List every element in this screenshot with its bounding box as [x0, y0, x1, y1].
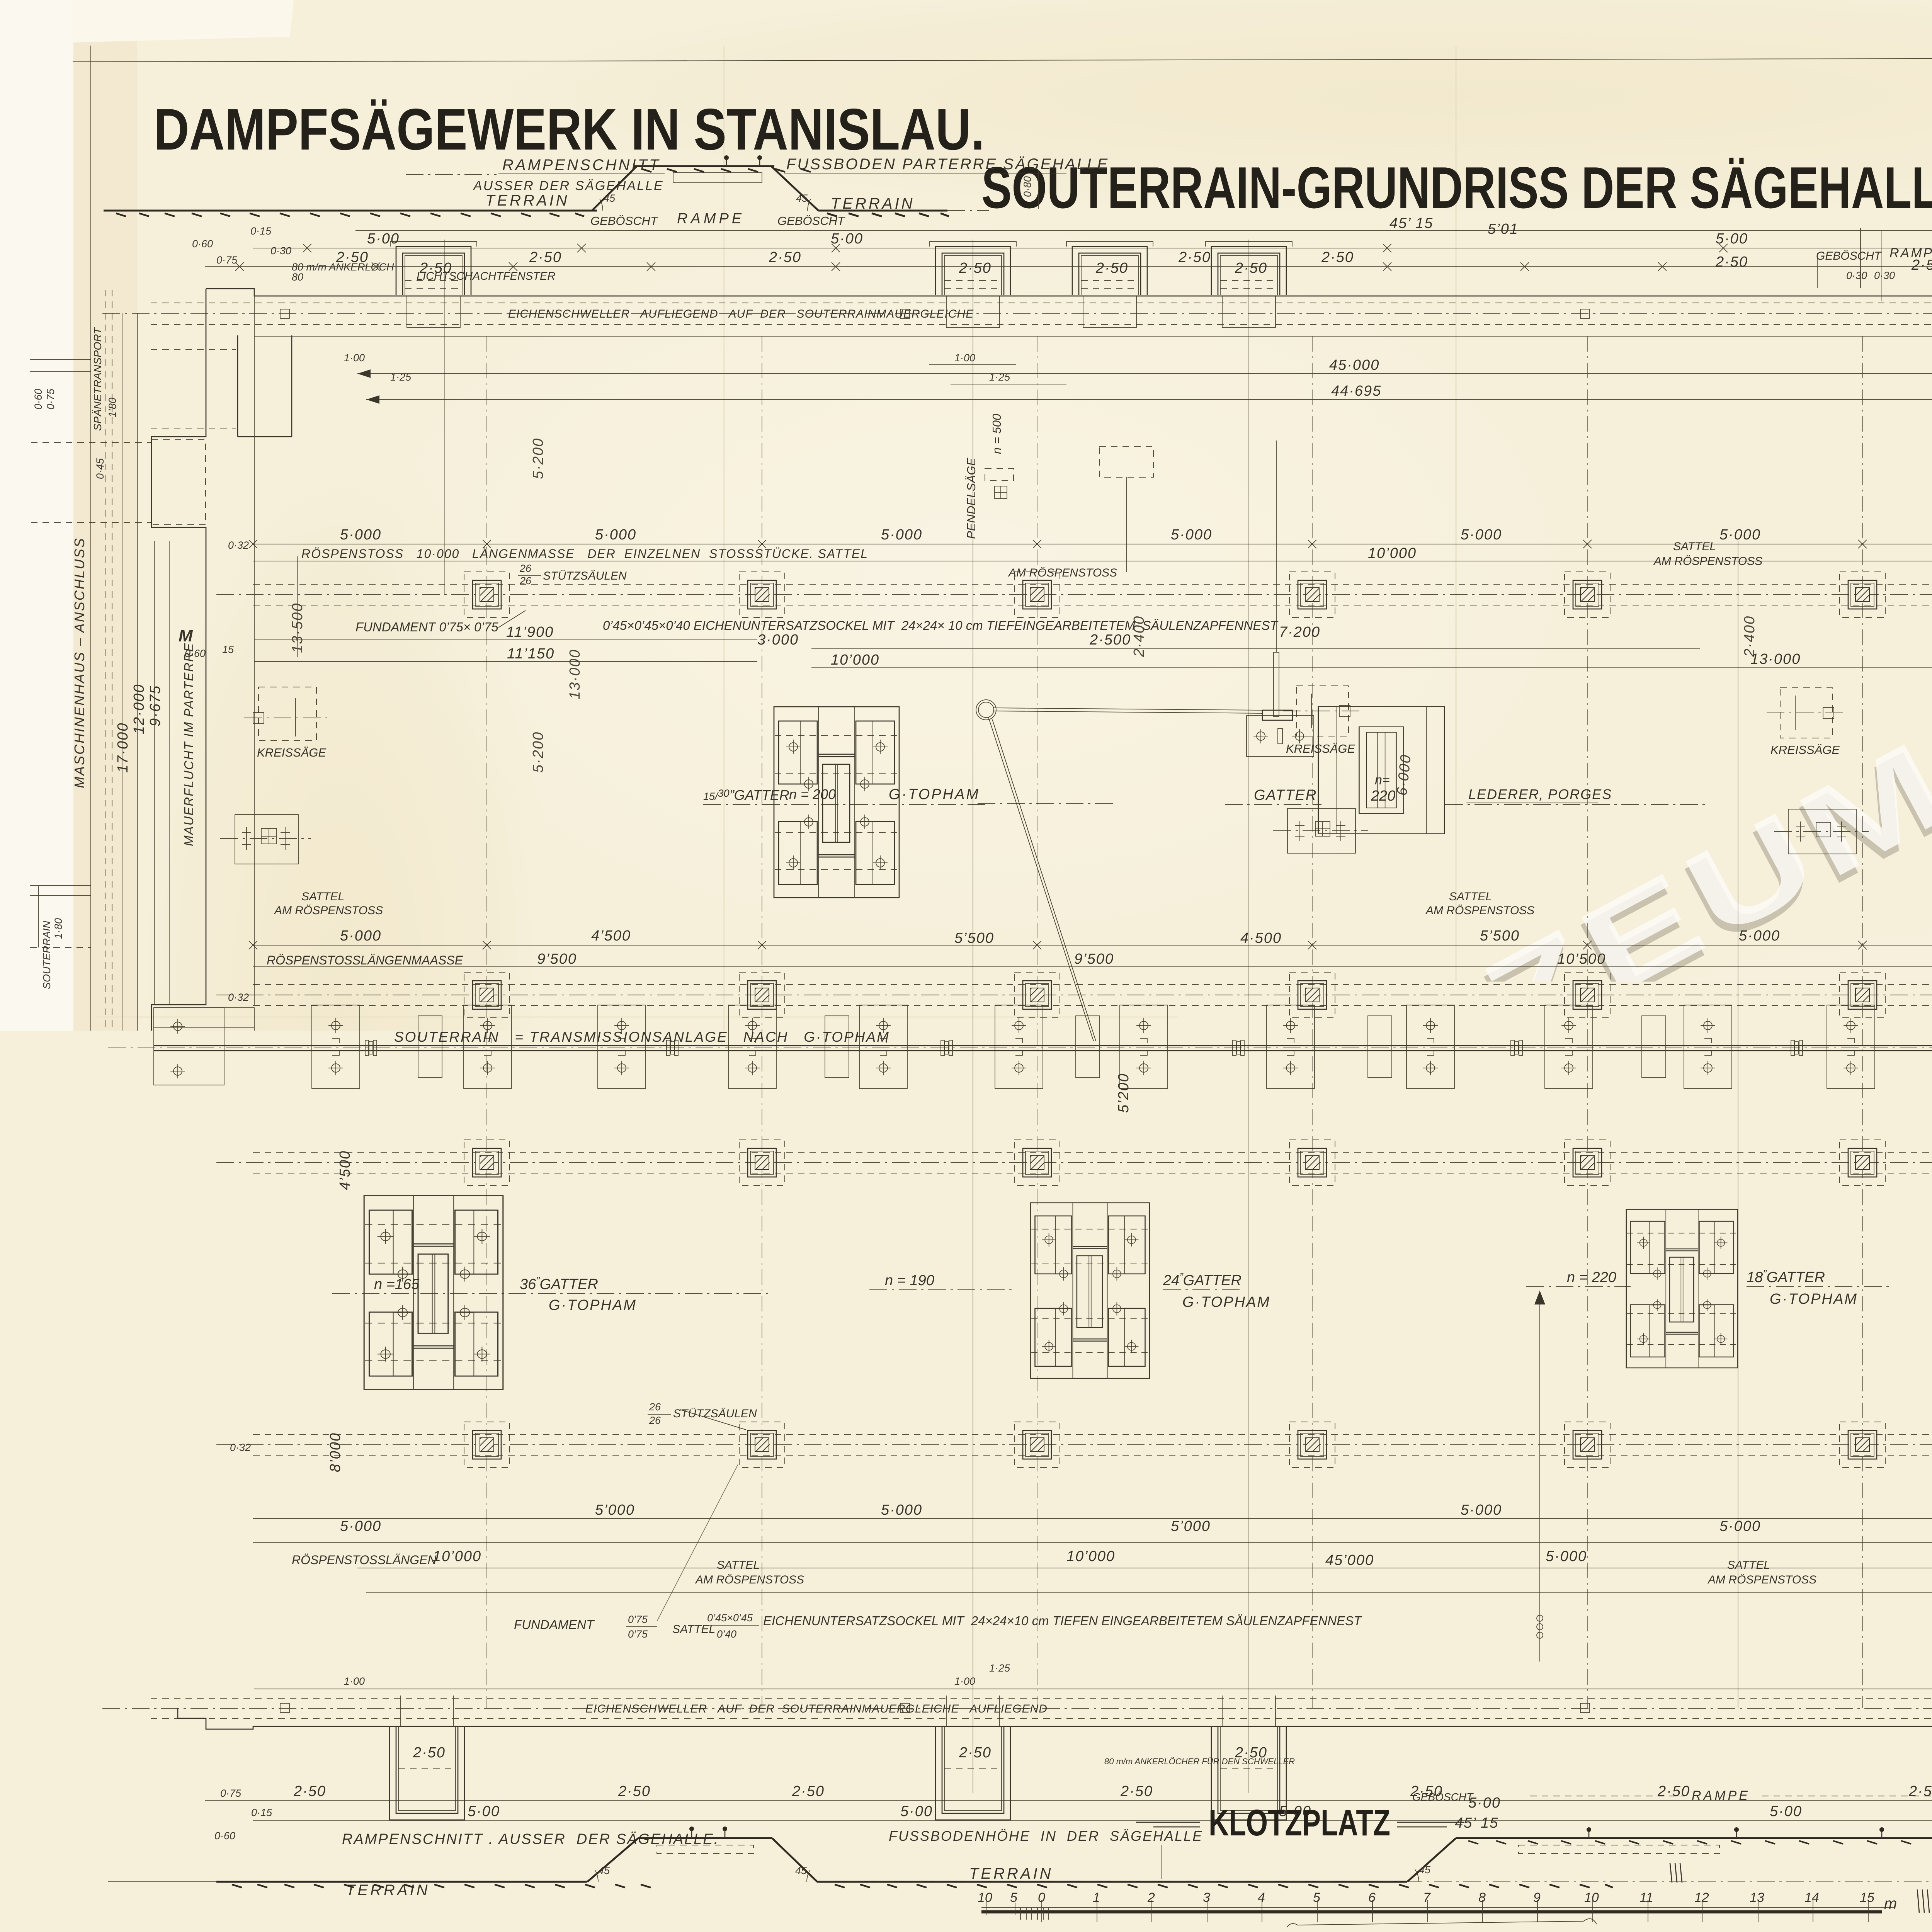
- svg-text:KREISSÄGE: KREISSÄGE: [257, 746, 326, 759]
- svg-text:GEBÖSCHT: GEBÖSCHT: [1816, 250, 1882, 262]
- svg-text:80: 80: [292, 271, 303, 283]
- svg-text:G·TOPHAM: G·TOPHAM: [1770, 1291, 1858, 1307]
- svg-text:13: 13: [1750, 1890, 1764, 1905]
- svg-text:4·550: 4·550: [127, 1141, 143, 1182]
- svg-text:13’000: 13’000: [582, 1315, 599, 1364]
- svg-text:MASCHINENHAUS – ANSCHLUSS: MASCHINENHAUS – ANSCHLUSS: [71, 537, 87, 788]
- svg-text:1: 1: [1093, 1890, 1100, 1905]
- svg-text:45’000: 45’000: [1325, 1552, 1374, 1568]
- svg-text:0’75: 0’75: [628, 1614, 648, 1625]
- svg-text:11’900: 11’900: [506, 624, 554, 640]
- svg-text:0’45×0’45×0’40 EICHENUNTERSATZ: 0’45×0’45×0’40 EICHENUNTERSATZSOCKEL MIT…: [603, 618, 1279, 633]
- svg-text:5·00: 5·00: [1468, 1795, 1501, 1811]
- svg-text:2’900: 2’900: [1595, 1648, 1636, 1664]
- svg-text:45: 45: [598, 1865, 610, 1876]
- svg-text:0·30: 0·30: [1874, 270, 1895, 281]
- svg-text:SATTEL: SATTEL: [717, 1559, 760, 1571]
- svg-text:9’500: 9’500: [1074, 951, 1114, 967]
- svg-text:36”GATTER: 36”GATTER: [520, 1275, 598, 1293]
- svg-text:10’500: 10’500: [1557, 951, 1606, 967]
- svg-text:5·000: 5·000: [1719, 1518, 1761, 1534]
- svg-text:5’200: 5’200: [530, 1324, 546, 1364]
- svg-text:2·50: 2·50: [1911, 257, 1932, 273]
- svg-text:1·80: 1·80: [53, 918, 64, 939]
- svg-text:PENDELSÄGE: PENDELSÄGE: [964, 457, 978, 539]
- svg-text:5·200: 5·200: [530, 438, 546, 479]
- svg-text:45: 45: [795, 1865, 807, 1876]
- svg-text:5’01: 5’01: [1488, 221, 1519, 237]
- svg-text:10’000: 10’000: [831, 652, 879, 668]
- svg-text:9·675: 9·675: [147, 685, 163, 726]
- svg-text:2·50: 2·50: [618, 1783, 651, 1799]
- svg-text:2·50: 2·50: [293, 1783, 326, 1799]
- svg-text:4’500: 4’500: [337, 1150, 353, 1190]
- svg-text:9: 9: [1533, 1890, 1541, 1905]
- svg-text:RAMPE: RAMPE: [677, 211, 745, 227]
- svg-text:1·00: 1·00: [344, 1675, 365, 1687]
- svg-text:EICHENUNTERSATZSOCKEL MIT 24×: EICHENUNTERSATZSOCKEL MIT 24×24×10 cm TI…: [763, 1614, 1362, 1628]
- svg-text:TERRAIN: TERRAIN: [485, 192, 570, 209]
- svg-text:AM RÖSPENSTOSS: AM RÖSPENSTOSS: [695, 1573, 804, 1586]
- svg-text:MASSSTAB = 1 : 50.: MASSSTAB = 1 : 50.: [1323, 1928, 1609, 1932]
- svg-text:7’200: 7’200: [808, 1653, 847, 1669]
- svg-text:GATTER: GATTER: [1254, 787, 1317, 803]
- svg-text:7·800: 7·800: [108, 1620, 124, 1662]
- svg-text:5·000: 5·000: [340, 527, 381, 543]
- svg-text:RAMPENSCHNITT: RAMPENSCHNITT: [502, 156, 660, 173]
- svg-text:4’500: 4’500: [591, 928, 631, 944]
- svg-text:DAMPFSÄGEWERK IN STANISLAU.: DAMPFSÄGEWERK IN STANISLAU.: [154, 97, 985, 162]
- svg-text:2·50: 2·50: [1908, 1783, 1932, 1799]
- svg-text:RÖSPENSTOSSLÄNGENMAASSE: RÖSPENSTOSSLÄNGENMAASSE: [267, 953, 463, 967]
- svg-text:4·500: 4·500: [203, 1163, 215, 1190]
- svg-text:0’75: 0’75: [628, 1628, 648, 1640]
- svg-text:5·00: 5·00: [1716, 231, 1748, 247]
- svg-text:M: M: [179, 626, 193, 645]
- svg-text:SOUTERRAIN: SOUTERRAIN: [41, 920, 53, 989]
- svg-text:1·00: 1·00: [344, 352, 365, 364]
- svg-text:18”GATTER: 18”GATTER: [1747, 1268, 1825, 1286]
- svg-text:24”GATTER: 24”GATTER: [1163, 1271, 1242, 1289]
- svg-text:n =165: n =165: [374, 1276, 420, 1293]
- svg-text:FUSSBODEN PARTERRE SÄGEHALLE: FUSSBODEN PARTERRE SÄGEHALLE: [786, 156, 1109, 173]
- svg-text:SATTEL: SATTEL: [1449, 890, 1492, 903]
- svg-text:SOUTERRAIN-GRUNDRISS DER SÄGEH: SOUTERRAIN-GRUNDRISS DER SÄGEHALLE.: [981, 155, 1932, 221]
- svg-text:5·000: 5·000: [1461, 1502, 1502, 1518]
- svg-text:AM RÖSPENSTOSS: AM RÖSPENSTOSS: [1425, 904, 1534, 917]
- svg-text:2·50: 2·50: [1120, 1783, 1153, 1799]
- svg-text:AM RÖSPENSTOSS: AM RÖSPENSTOSS: [1008, 566, 1117, 579]
- svg-text:5·000: 5·000: [1171, 527, 1212, 543]
- svg-text:5’000: 5’000: [1171, 1518, 1211, 1534]
- svg-text:10: 10: [1584, 1890, 1599, 1905]
- svg-text:0·32: 0·32: [228, 992, 249, 1003]
- svg-text:45: 45: [604, 192, 616, 204]
- svg-text:LEDERER‚ PORGES: LEDERER‚ PORGES: [1468, 786, 1612, 802]
- svg-text:10’000: 10’000: [433, 1548, 481, 1565]
- svg-text:5·200: 5·200: [530, 731, 546, 773]
- svg-text:1·00: 1·00: [954, 1675, 975, 1687]
- svg-text:44·695: 44·695: [1331, 383, 1381, 399]
- svg-text:0·60: 0·60: [185, 648, 206, 659]
- svg-text:26: 26: [649, 1401, 661, 1413]
- svg-text:5·00: 5·00: [900, 1803, 933, 1820]
- svg-text:5·000: 5·000: [595, 527, 636, 543]
- svg-text:10’000: 10’000: [1368, 545, 1417, 561]
- svg-text:2: 2: [1147, 1890, 1155, 1905]
- svg-text:5·000: 5·000: [1719, 527, 1761, 543]
- svg-text:11: 11: [1639, 1890, 1653, 1905]
- svg-text:SATTEL: SATTEL: [1673, 540, 1716, 553]
- svg-text:12: 12: [1694, 1890, 1709, 1905]
- svg-text:1·25: 1·25: [989, 371, 1010, 383]
- svg-text:0·80: 0·80: [1144, 1851, 1156, 1872]
- svg-text:14: 14: [1804, 1890, 1819, 1905]
- svg-text:0·60: 0·60: [214, 1830, 235, 1842]
- svg-text:TERRAIN: TERRAIN: [969, 1865, 1053, 1882]
- svg-text:4’800: 4’800: [259, 1648, 299, 1664]
- svg-text:2·50: 2·50: [769, 249, 801, 265]
- svg-text:0·60: 0·60: [94, 1710, 106, 1731]
- svg-text:0·60: 0·60: [32, 389, 44, 410]
- svg-text:FUNDAMENT: FUNDAMENT: [514, 1617, 595, 1632]
- svg-text:13·500: 13·500: [289, 603, 306, 653]
- svg-text:45’ 15: 45’ 15: [1389, 215, 1433, 231]
- svg-text:EICHENSCHWELLER AUF DER SO: EICHENSCHWELLER AUF DER SOUTERRAINMAUERG…: [585, 1702, 1048, 1715]
- svg-text:0·15: 0·15: [250, 225, 272, 237]
- svg-text:KREISSÄGE: KREISSÄGE: [1770, 743, 1840, 757]
- svg-text:SCHÄRFEREI-ANSCHLUSS /IM PARTE: SCHÄRFEREI-ANSCHLUSS /IM PARTERRE SITUIR…: [161, 1170, 173, 1488]
- svg-text:7·650: 7·650: [126, 1543, 142, 1584]
- svg-text:13·000: 13·000: [567, 649, 583, 699]
- svg-text:5·00: 5·00: [468, 1803, 500, 1820]
- svg-text:3·000: 3·000: [757, 632, 799, 648]
- svg-text:2·50: 2·50: [1321, 249, 1354, 265]
- svg-text:KREISSÄGE: KREISSÄGE: [1286, 742, 1355, 755]
- svg-text:MAUERFLUCHT IM PARTERRE: MAUERFLUCHT IM PARTERRE: [182, 643, 196, 846]
- svg-text:9’500: 9’500: [537, 951, 577, 967]
- svg-text:1’80: 1’80: [107, 398, 118, 417]
- svg-text:8: 8: [1478, 1890, 1486, 1905]
- svg-text:4’800: 4’800: [537, 1648, 577, 1664]
- svg-text:5’200: 5’200: [1116, 1073, 1132, 1113]
- svg-text:1·25: 1·25: [390, 371, 412, 383]
- svg-text:4’400: 4’400: [1839, 1648, 1879, 1664]
- svg-text:5’500: 5’500: [954, 930, 994, 946]
- svg-text:0·75: 0·75: [216, 254, 238, 266]
- svg-text:1·500: 1·500: [226, 1051, 237, 1078]
- svg-text:0·75: 0·75: [107, 1710, 118, 1731]
- svg-text:0·30: 0·30: [1846, 270, 1867, 281]
- svg-text:0: 0: [1038, 1890, 1045, 1905]
- svg-text:5·000: 5·000: [340, 1518, 381, 1534]
- svg-text:0·75: 0·75: [220, 1787, 241, 1799]
- svg-text:4: 4: [1258, 1890, 1265, 1905]
- svg-text:0·75: 0·75: [45, 1741, 56, 1762]
- svg-text:KLOTZPLATZ: KLOTZPLATZ: [1209, 1802, 1390, 1844]
- svg-text:0·60: 0·60: [32, 1741, 44, 1762]
- svg-text:15: 15: [222, 644, 234, 655]
- svg-text:0·80: 0·80: [1022, 176, 1033, 197]
- svg-text:n = 190: n = 190: [885, 1272, 934, 1289]
- svg-text:AM RÖSPENSTOSS: AM RÖSPENSTOSS: [1653, 555, 1762, 568]
- svg-text:2·50: 2·50: [529, 249, 562, 265]
- svg-text:M: M: [179, 1635, 193, 1654]
- svg-text:n = 500: n = 500: [990, 414, 1003, 454]
- svg-text:15: 15: [1860, 1890, 1874, 1905]
- svg-text:RAMPE: RAMPE: [1692, 1788, 1750, 1803]
- svg-text:26: 26: [649, 1415, 661, 1426]
- svg-text:GEBÖSCHT: GEBÖSCHT: [1412, 1791, 1474, 1803]
- svg-text:SATTEL: SATTEL: [1727, 1559, 1770, 1571]
- svg-text:5·00: 5·00: [1770, 1803, 1802, 1820]
- svg-text:5: 5: [1010, 1890, 1017, 1905]
- svg-text:26·000: 26·000: [153, 1113, 170, 1163]
- svg-text:5·000: 5·000: [1739, 928, 1780, 944]
- svg-text:FUNDAMENT 0’75× 0’75: FUNDAMENT 0’75× 0’75: [355, 620, 498, 634]
- svg-text:m: m: [1884, 1895, 1897, 1912]
- svg-text:26: 26: [519, 575, 532, 587]
- svg-text:0’40: 0’40: [717, 1628, 736, 1640]
- svg-text:45: 45: [796, 192, 808, 204]
- svg-text:STÜTZSÄULEN: STÜTZSÄULEN: [543, 570, 627, 582]
- svg-text:6: 6: [1368, 1890, 1376, 1905]
- svg-text:5·00: 5·00: [831, 231, 863, 247]
- svg-text:n = 200: n = 200: [789, 786, 836, 802]
- svg-text:7: 7: [1423, 1890, 1431, 1905]
- svg-text:TERRAIN: TERRAIN: [831, 195, 915, 212]
- svg-text:G·TOPHAM: G·TOPHAM: [549, 1297, 637, 1313]
- svg-text:2·50: 2·50: [1178, 249, 1211, 265]
- svg-text:RÖSPENSTOSSLÄNGEN: RÖSPENSTOSSLÄNGEN: [292, 1553, 437, 1567]
- svg-text:5·000: 5·000: [881, 527, 922, 543]
- svg-text:SATTEL: SATTEL: [301, 890, 344, 903]
- svg-text:45: 45: [1419, 1864, 1431, 1876]
- svg-text:0·15: 0·15: [251, 1807, 272, 1818]
- svg-text:2·50: 2·50: [1715, 254, 1748, 270]
- svg-text:AM RÖSPENSTOSS: AM RÖSPENSTOSS: [274, 904, 383, 917]
- svg-text:TERRAIN: TERRAIN: [346, 1882, 430, 1899]
- svg-text:7·200: 7·200: [1279, 624, 1320, 640]
- svg-text:G·TOPHAM: G·TOPHAM: [1182, 1294, 1270, 1310]
- svg-text:2·50: 2·50: [1657, 1783, 1690, 1799]
- svg-text:5·000: 5·000: [881, 1502, 922, 1518]
- svg-text:1·200: 1·200: [196, 1198, 207, 1225]
- svg-text:5·000: 5·000: [1546, 1548, 1587, 1565]
- svg-text:2·50: 2·50: [792, 1783, 825, 1799]
- svg-text:13·000: 13·000: [1750, 651, 1801, 667]
- svg-text:26: 26: [519, 563, 532, 574]
- svg-text:AUSSER DER SÄGEHALLE: AUSSER DER SÄGEHALLE: [473, 179, 664, 193]
- svg-text:10: 10: [978, 1890, 992, 1905]
- svg-text:12·000: 12·000: [131, 684, 147, 734]
- svg-text:11’150: 11’150: [507, 646, 554, 662]
- svg-text:0’45×0’45: 0’45×0’45: [707, 1612, 753, 1624]
- svg-text:AM RÖSPENSTOSS: AM RÖSPENSTOSS: [1707, 1573, 1816, 1586]
- svg-text:45’ 15: 45’ 15: [1455, 1815, 1498, 1831]
- svg-text:0·45: 0·45: [94, 458, 106, 479]
- svg-text:7’800: 7’800: [1321, 1653, 1361, 1669]
- svg-text:8’000: 8’000: [327, 1432, 344, 1472]
- svg-text:12’500: 12’500: [287, 1400, 303, 1449]
- svg-text:10’000: 10’000: [1066, 1548, 1115, 1565]
- svg-text:0·32: 0·32: [230, 1442, 251, 1453]
- svg-text:SATTEL: SATTEL: [672, 1623, 715, 1636]
- svg-text:4·500: 4·500: [1240, 930, 1282, 946]
- svg-text:0·32: 0·32: [228, 539, 249, 551]
- svg-text:FUSSBODENHÖHE IN DER SÄGEHA: FUSSBODENHÖHE IN DER SÄGEHALLE: [889, 1828, 1203, 1844]
- svg-text:5’000: 5’000: [595, 1502, 635, 1518]
- svg-text:3: 3: [1203, 1890, 1210, 1905]
- svg-text:5’500: 5’500: [1480, 928, 1520, 944]
- svg-text:G·TOPHAM: G·TOPHAM: [889, 786, 980, 803]
- svg-text:220: 220: [1371, 788, 1395, 804]
- svg-text:5·000: 5·000: [340, 928, 381, 944]
- svg-text:n = 220: n = 220: [1567, 1269, 1616, 1286]
- svg-text:RÖSPENSTOSS 10·000 LÄNGENM: RÖSPENSTOSS 10·000 LÄNGENMASSE DER EINZE…: [301, 547, 868, 561]
- svg-text:0·30: 0·30: [270, 245, 291, 257]
- svg-text:5·00: 5·00: [367, 231, 400, 247]
- svg-text:SPÄNETRANSPORT: SPÄNETRANSPORT: [92, 327, 104, 431]
- svg-text:2·500: 2·500: [1089, 632, 1131, 648]
- svg-text:GEBÖSCHT: GEBÖSCHT: [777, 214, 845, 228]
- svg-text:n=: n=: [1375, 773, 1390, 787]
- svg-text:0·60: 0·60: [192, 238, 213, 250]
- svg-text:44’695: 44’695: [1327, 1577, 1376, 1593]
- svg-text:GEBÖSCHT: GEBÖSCHT: [590, 214, 658, 228]
- svg-text:17·000: 17·000: [115, 723, 131, 773]
- svg-text:5: 5: [1313, 1890, 1320, 1905]
- svg-text:80 m/m ANKERLOCH: 80 m/m ANKERLOCH: [292, 261, 394, 273]
- svg-text:45·000: 45·000: [1329, 357, 1379, 373]
- svg-text:0·75: 0·75: [45, 388, 56, 410]
- svg-text:5·000: 5·000: [1461, 527, 1502, 543]
- svg-text:1·25: 1·25: [989, 1662, 1010, 1674]
- svg-text:STÜTZSÄULEN: STÜTZSÄULEN: [673, 1407, 757, 1420]
- svg-text:SOUTERRAIN = TRANSMISSIONSAN: SOUTERRAIN = TRANSMISSIONSANLAGE NACH G·…: [394, 1029, 890, 1045]
- svg-text:1·00: 1·00: [954, 352, 975, 364]
